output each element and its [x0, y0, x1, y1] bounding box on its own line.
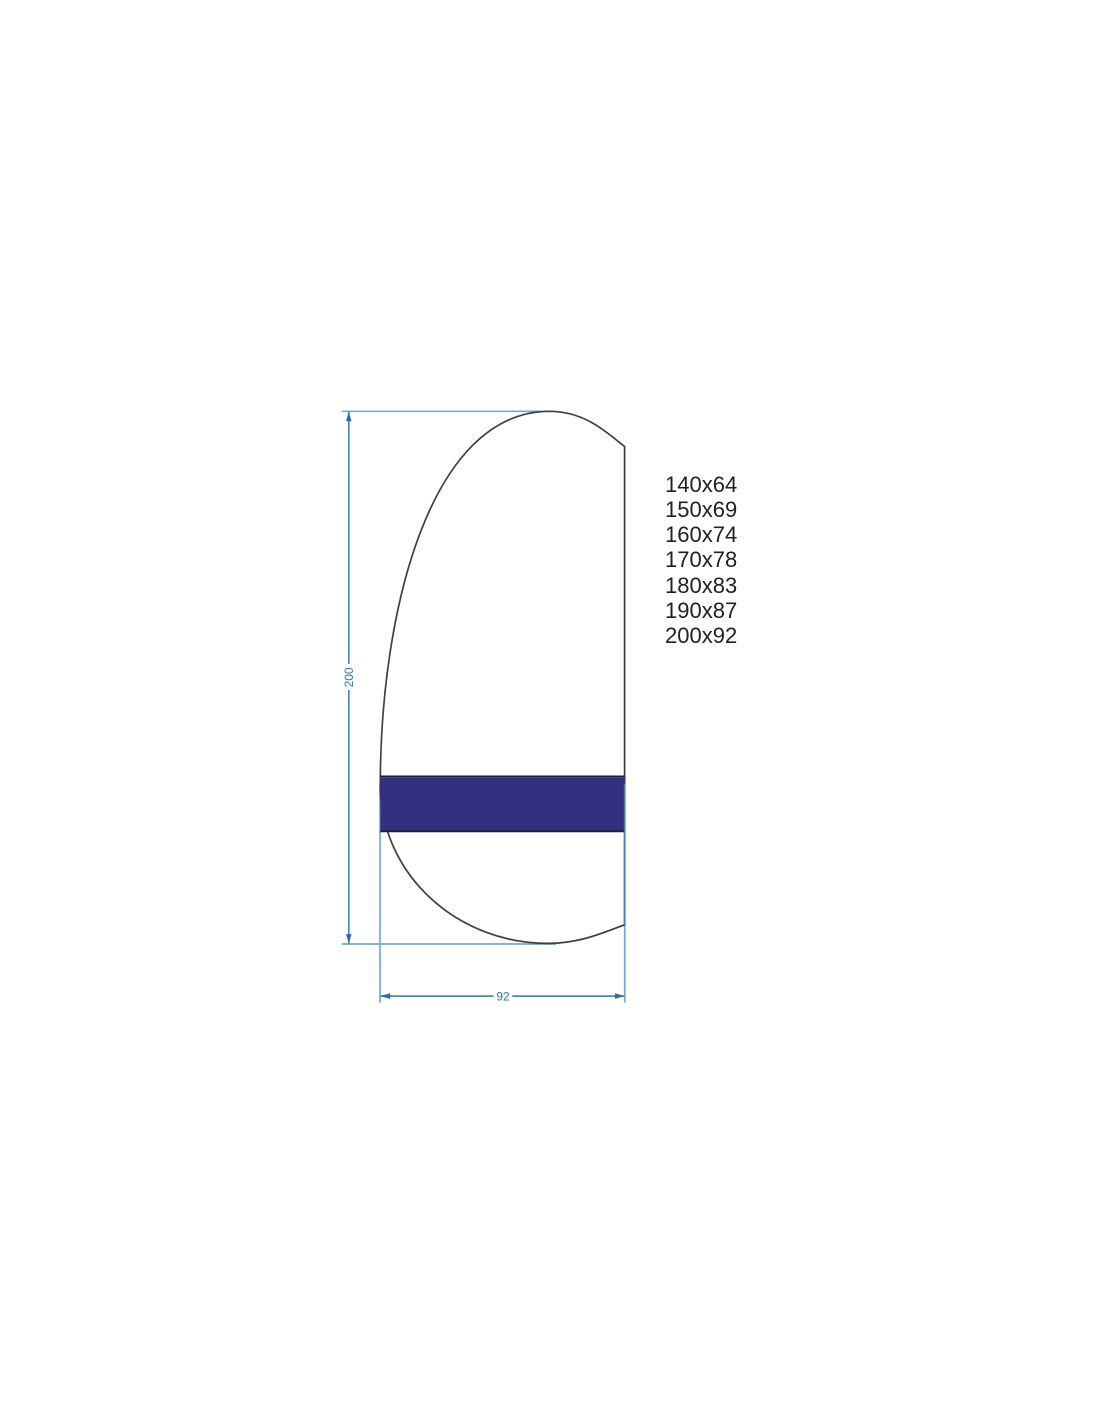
svg-text:200: 200	[342, 667, 356, 687]
svg-text:92: 92	[496, 989, 510, 1003]
